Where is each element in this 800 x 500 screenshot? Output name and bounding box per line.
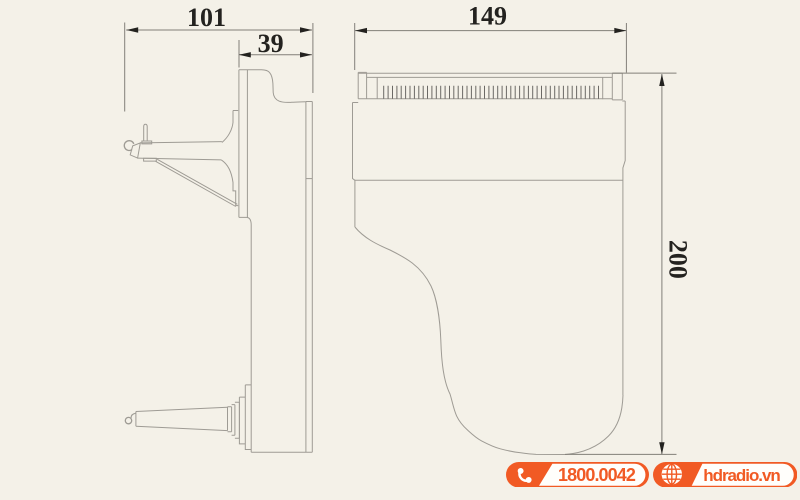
svg-text:101: 101 <box>187 3 226 32</box>
svg-text:39: 39 <box>258 29 284 58</box>
svg-text:200: 200 <box>664 240 693 279</box>
svg-text:149: 149 <box>468 2 507 31</box>
